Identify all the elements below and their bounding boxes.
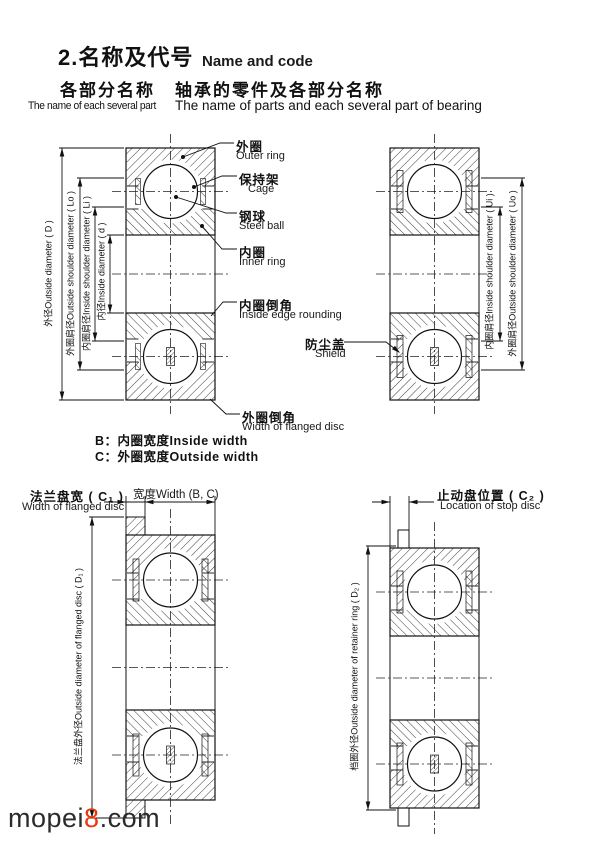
column-title-right-en: The name of parts and each several part … <box>175 98 482 113</box>
label-inner-ring-en: Inner ring <box>239 256 285 268</box>
dim-inside-shoulder-ui: 内圈肩径Inside shoulder diameter ( Ui ) <box>483 122 496 422</box>
label-cage-en: Cage <box>248 183 274 195</box>
column-title-left-en: The name of each several part <box>28 100 156 112</box>
bearing-shielded-section <box>376 134 493 414</box>
dim-outside-shoulder-uo: 外圈肩径Outside shoulder diameter ( Uo ) <box>506 124 519 424</box>
bearing-flanged-section <box>112 509 229 826</box>
column-title-left-zh: 各部分名称 <box>60 76 155 101</box>
bearing-open-section <box>112 134 229 414</box>
page-title-en: Name and code <box>202 53 313 70</box>
label-width-bc: 宽度Width (B, C) <box>133 486 219 502</box>
watermark-accent: 8 <box>84 803 100 833</box>
note-outside-width: C：外圈宽度Outside width <box>95 446 259 465</box>
bearing-nomenclature-page: 2.名称及代号 Name and code 各部分名称 轴承的零件及各部分名称 … <box>0 0 600 846</box>
label-steel-ball-en: Steel ball <box>239 220 284 232</box>
page-title-zh: 2.名称及代号 <box>58 40 193 72</box>
label-stop-disc-en: Location of stop disc <box>440 500 540 512</box>
label-flange-width-en: Width of flanged disc <box>22 501 124 513</box>
dim-outside-diameter: 外径Outside diameter ( D ) <box>42 124 55 424</box>
dim-flange-outside-diameter: 法兰盘外径Outside diameter of flanged disc ( … <box>72 517 85 817</box>
label-shield-en: Shield <box>315 348 346 360</box>
dim-outside-shoulder: 外圈肩径Outside shoulder diameter ( Lo ) <box>64 124 77 424</box>
label-inside-edge-en: Inside edge rounding <box>239 309 342 321</box>
dim-retainer-outside-diameter: 档圈外径Outside diameter of retainer ring ( … <box>348 527 361 827</box>
dim-inside-shoulder: 内圈肩径Inside shoulder diameter ( Li ) <box>80 124 93 424</box>
label-outer-ring-en: Outer ring <box>236 150 285 162</box>
bearing-stop-disc-section <box>376 522 493 834</box>
label-outside-edge-en: Width of flanged disc <box>242 421 344 433</box>
watermark-pre: mopei <box>8 803 84 833</box>
dim-inside-diameter: 内径Inside diameter ( d ) <box>95 122 108 422</box>
watermark-post: .com <box>100 803 161 833</box>
watermark: mopei8.com <box>8 803 160 834</box>
